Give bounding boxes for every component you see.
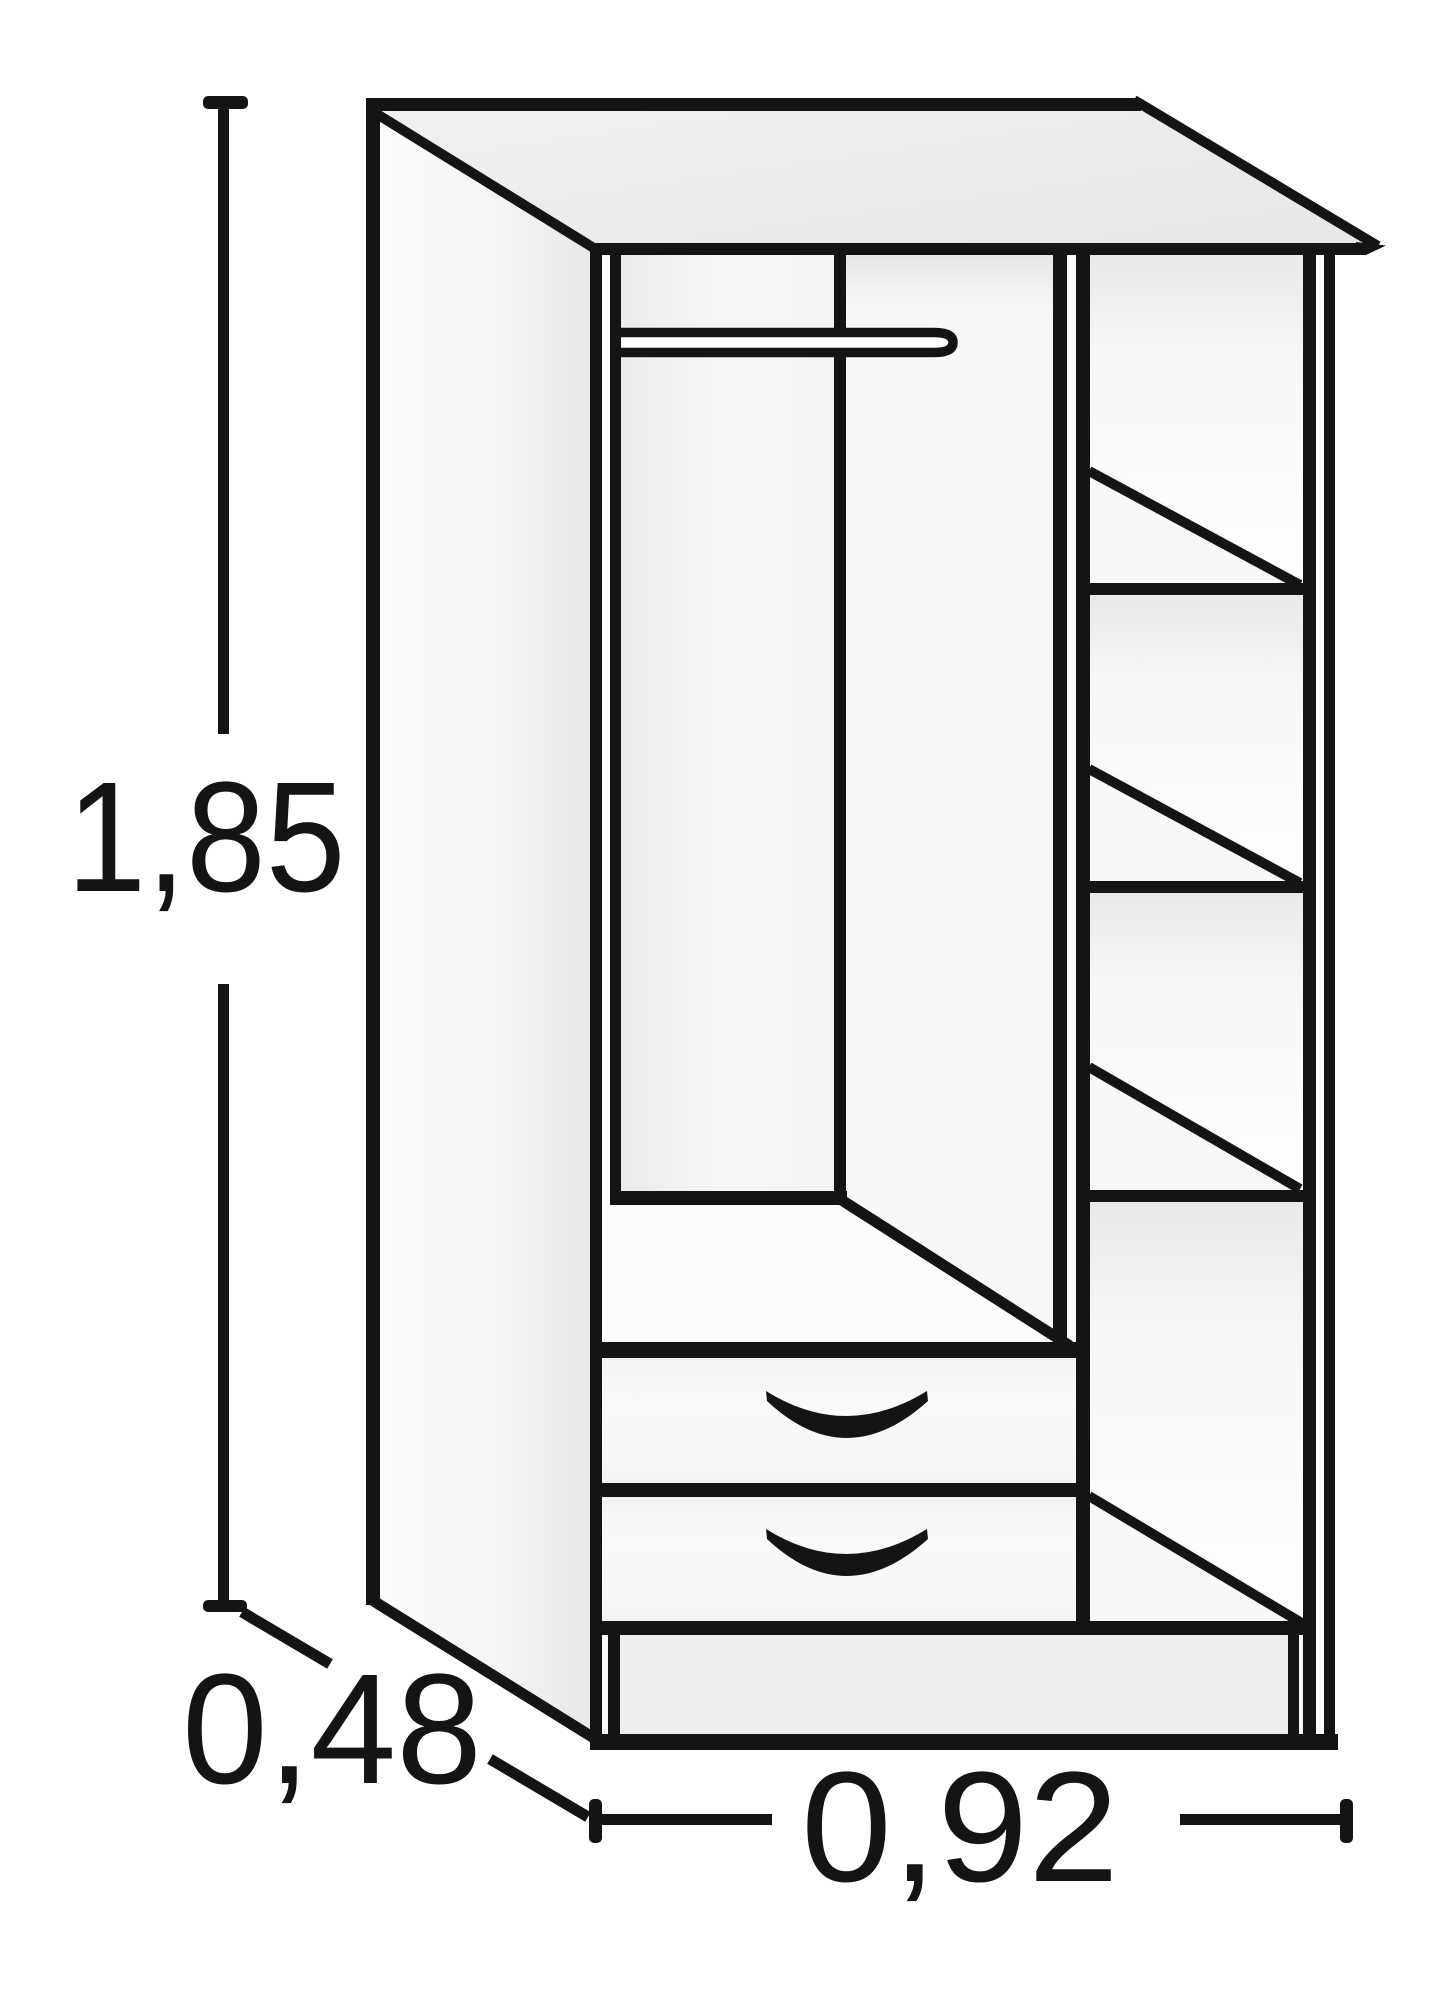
svg-text:0,48: 0,48 [182,1642,482,1817]
svg-text:1,85: 1,85 [67,750,346,925]
svg-text:0,92: 0,92 [801,1740,1119,1915]
